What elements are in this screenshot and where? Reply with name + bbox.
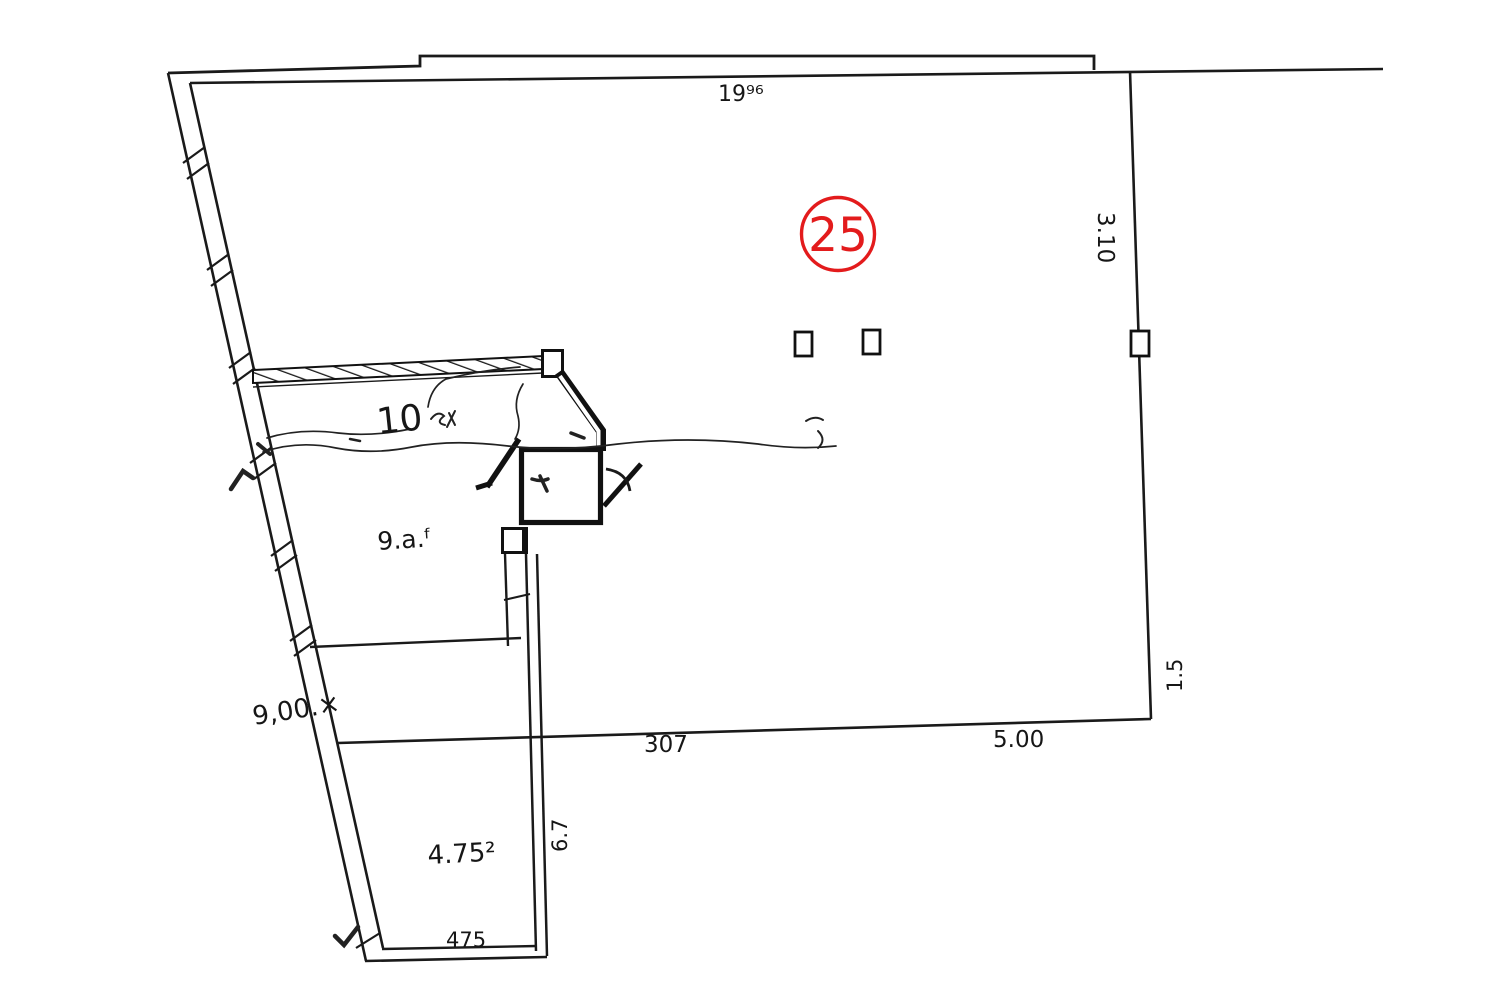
sketch-hook: [818, 431, 823, 448]
sketch-scribble: [431, 414, 445, 425]
label-middle-room-area: 9.a.ᶠ: [376, 523, 432, 556]
column-box-1: [795, 332, 812, 356]
sketch-scribble: [447, 411, 455, 427]
column-box-2: [863, 330, 880, 354]
floor-plan-drawing: 25 19⁹⁶ 3.10 1.5 307 5.00 9,00.× 10 9.a.…: [0, 0, 1500, 1000]
label-upper-room-area: 10: [375, 397, 425, 443]
label-bottom-right-width: 5.00: [993, 727, 1044, 753]
label-lower-room-width: 475: [446, 928, 486, 952]
left-wall-inner: [190, 83, 383, 948]
floor-plan-sheet: 25 19⁹⁶ 3.10 1.5 307 5.00 9,00.× 10 9.a.…: [0, 0, 1500, 1000]
sketch-line: [515, 384, 523, 439]
label-right-offset: 1.5: [1163, 659, 1187, 692]
left-wall-ticks: [183, 147, 380, 948]
left-wall-outer: [168, 73, 366, 961]
lower-block-bottom-outer: [365, 957, 547, 961]
lower-block-top: [310, 638, 521, 647]
label-lower-room-area: 4.75²: [427, 837, 497, 871]
angle-mark: [231, 471, 253, 489]
label-bottom-inner-width: 307: [644, 732, 688, 758]
parcel-number-label: 25: [808, 208, 868, 263]
label-corridor-width: 6.7: [548, 819, 572, 852]
small-post: [503, 529, 524, 553]
sketch-tick: [350, 439, 360, 441]
boundary-top-inner: [190, 69, 1383, 83]
label-left-boundary: 9,00.×: [250, 689, 342, 732]
sketch-dash: [571, 433, 584, 438]
boundary-right: [1130, 71, 1151, 719]
label-top-width: 19⁹⁶: [718, 82, 764, 107]
corridor-wall-line-2: [537, 554, 547, 956]
small-room: [522, 450, 601, 523]
sketch-hook: [806, 418, 823, 421]
corridor-wall-line-1: [526, 554, 536, 951]
check-mark: [335, 927, 358, 945]
right-wall-box: [1131, 331, 1149, 356]
label-right-height: 3.10: [1092, 212, 1118, 263]
boundary-top-outer: [168, 56, 1094, 73]
